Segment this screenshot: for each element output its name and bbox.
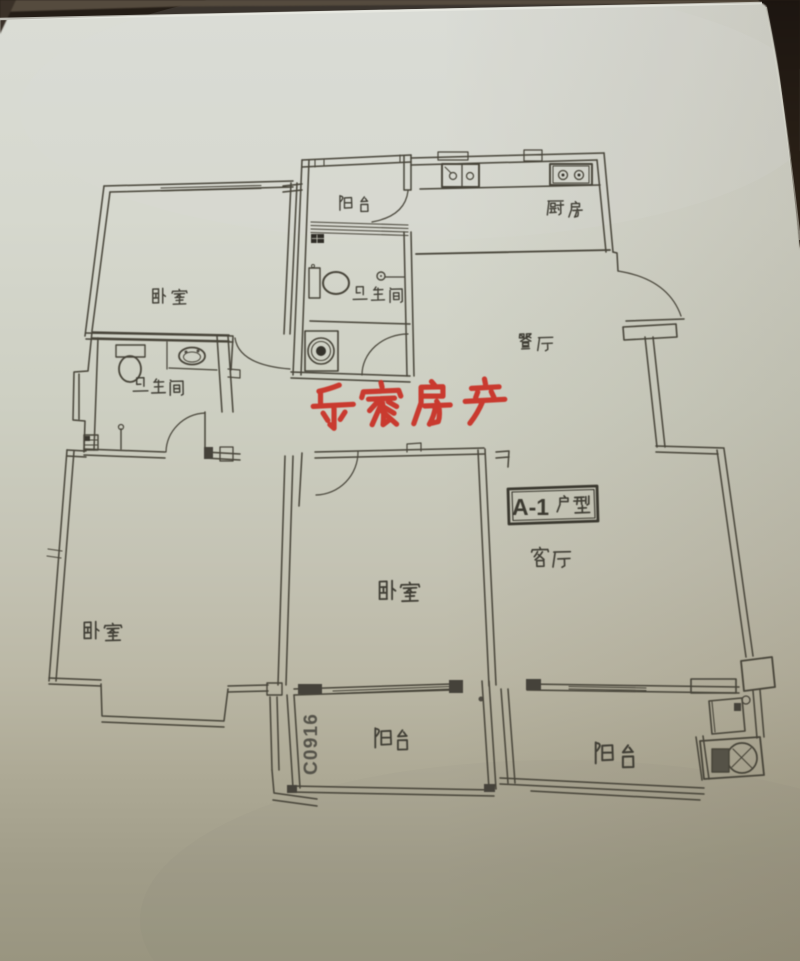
svg-text:A-1: A-1 (512, 494, 549, 520)
svg-text:C0916: C0916 (301, 713, 322, 775)
